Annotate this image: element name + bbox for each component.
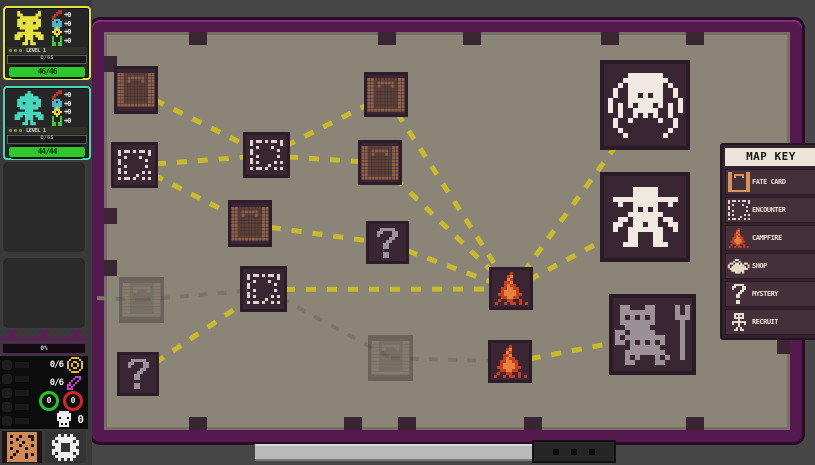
- map-key-label: RECRUIT: [752, 318, 815, 326]
- xp-bar: 0/65: [7, 55, 87, 64]
- gem-count: 0/6: [50, 378, 63, 388]
- party-member-card-2[interactable]: +0 +0 +0 +0 LEVEL 1 0/65 44/44: [3, 86, 91, 160]
- resource-values: 0/6 0/6 0 0 0: [30, 356, 88, 428]
- locked-resource-row: [2, 400, 30, 414]
- green-orb: 0: [39, 391, 59, 411]
- map-key-list: FATE CARDENCOUNTERCAMPFIRESHOPMYSTERYREC…: [725, 169, 815, 335]
- map-key-row-shop: SHOP: [725, 253, 815, 279]
- trait-dot: [9, 129, 12, 132]
- locked-resource-row: [2, 358, 30, 372]
- gear-icon: [52, 434, 79, 461]
- recruit-icon: [726, 313, 752, 331]
- locked-resource-row: [2, 386, 30, 400]
- vent-dot: [589, 449, 595, 455]
- map-key-row-encounter: ENCOUNTER: [725, 197, 815, 223]
- fate-card-icon: [726, 172, 752, 192]
- table-tray: [255, 444, 532, 461]
- map-key-title: MAP KEY: [725, 148, 815, 166]
- hp-bar: 44/44: [7, 145, 87, 159]
- run-progress-bar: 0%: [2, 343, 86, 354]
- trait-dot: [19, 129, 22, 132]
- map-key-panel: MAP KEY FATE CARDENCOUNTERCAMPFIRESHOPMY…: [720, 143, 815, 340]
- divider-stud: [70, 330, 82, 333]
- stat-value: +0: [64, 117, 70, 125]
- stat-value: +0: [64, 37, 70, 45]
- character-summary: +0 +0 +0 +0: [7, 90, 87, 126]
- stat-value: +0: [64, 91, 70, 99]
- empty-party-slot: [3, 258, 85, 328]
- xp-value: 0/65: [40, 55, 53, 61]
- mystery-icon: [726, 284, 752, 304]
- locked-resources: [2, 358, 30, 428]
- coin-count: 0/6: [50, 360, 63, 370]
- map-key-row-mystery: MYSTERY: [725, 281, 815, 307]
- party-member-card-1[interactable]: +0 +0 +0 +0 LEVEL 1 0/65 46/46: [3, 6, 91, 80]
- character-summary: +0 +0 +0 +0: [7, 10, 87, 46]
- orb-counters: 0 0: [30, 392, 88, 410]
- fate-deck-button[interactable]: [2, 431, 42, 463]
- level-label: LEVEL 1: [26, 48, 46, 54]
- shop-icon: [726, 259, 752, 273]
- hp-value: 44/44: [37, 147, 56, 156]
- empty-party-slot: [3, 162, 85, 252]
- xp-bar: 0/65: [7, 135, 87, 144]
- progress-value: 0%: [40, 345, 47, 352]
- hero-sprite: [15, 91, 44, 125]
- party-sidebar: +0 +0 +0 +0 LEVEL 1 0/65 46/46: [0, 0, 92, 465]
- stat-value: +0: [64, 108, 70, 116]
- map-key-row-recruit: RECRUIT: [725, 309, 815, 335]
- speed-icon: [51, 116, 62, 126]
- vent-dot: [571, 449, 577, 455]
- locked-resource-row: [2, 372, 30, 386]
- map-board: [92, 20, 802, 442]
- resource-panel: 0/6 0/6 0 0 0: [0, 356, 88, 429]
- trait-dot: [19, 49, 22, 52]
- skull-icon: [55, 411, 73, 427]
- level-row: LEVEL 1: [7, 127, 87, 134]
- map-key-label: SHOP: [752, 262, 815, 270]
- stat-column: +0 +0 +0 +0: [51, 90, 83, 126]
- hp-value: 46/46: [37, 67, 56, 76]
- encounter-icon: [726, 200, 752, 220]
- yellow-adventurer-portrait: [7, 10, 51, 46]
- map-key-label: MYSTERY: [752, 290, 815, 298]
- map-key-label: FATE CARD: [752, 178, 815, 186]
- gem-icon: [67, 376, 83, 390]
- level-label: LEVEL 1: [26, 128, 46, 134]
- speed-icon: [51, 36, 62, 46]
- stat-value: +0: [64, 28, 70, 36]
- trait-dot: [9, 49, 12, 52]
- trait-dot: [14, 129, 17, 132]
- locked-resource-row: [2, 414, 30, 428]
- kill-counter: 0: [30, 410, 88, 428]
- coin-counter: 0/6: [30, 356, 88, 374]
- campfire-icon: [726, 228, 752, 248]
- divider-stud: [6, 330, 18, 333]
- stat-value: +0: [64, 20, 70, 28]
- map-key-row-fate-card: FATE CARD: [725, 169, 815, 195]
- gem-counter: 0/6: [30, 374, 88, 392]
- map-key-label: ENCOUNTER: [752, 206, 815, 214]
- stat-value: +0: [64, 11, 70, 19]
- map-key-label: CAMPFIRE: [752, 234, 815, 242]
- hero-sprite: [15, 11, 44, 45]
- settings-button[interactable]: [45, 431, 86, 463]
- hp-bar: 46/46: [7, 65, 87, 79]
- trait-dot: [14, 49, 17, 52]
- teal-adventurer-portrait: [7, 90, 51, 126]
- stat-value: +0: [64, 100, 70, 108]
- vent-dot: [553, 449, 559, 455]
- map-key-row-campfire: CAMPFIRE: [725, 225, 815, 251]
- map-surface: [104, 32, 790, 430]
- divider-stud: [38, 330, 50, 333]
- fate-deck-icon: [7, 432, 37, 462]
- red-orb: 0: [63, 391, 83, 411]
- coin-icon: [67, 357, 83, 373]
- game-screen: +0 +0 +0 +0 LEVEL 1 0/65 46/46: [0, 0, 815, 465]
- kill-count: 0: [77, 413, 83, 426]
- level-row: LEVEL 1: [7, 47, 87, 54]
- xp-value: 0/65: [40, 135, 53, 141]
- stat-column: +0 +0 +0 +0: [51, 10, 83, 46]
- vent-panel: [532, 440, 616, 463]
